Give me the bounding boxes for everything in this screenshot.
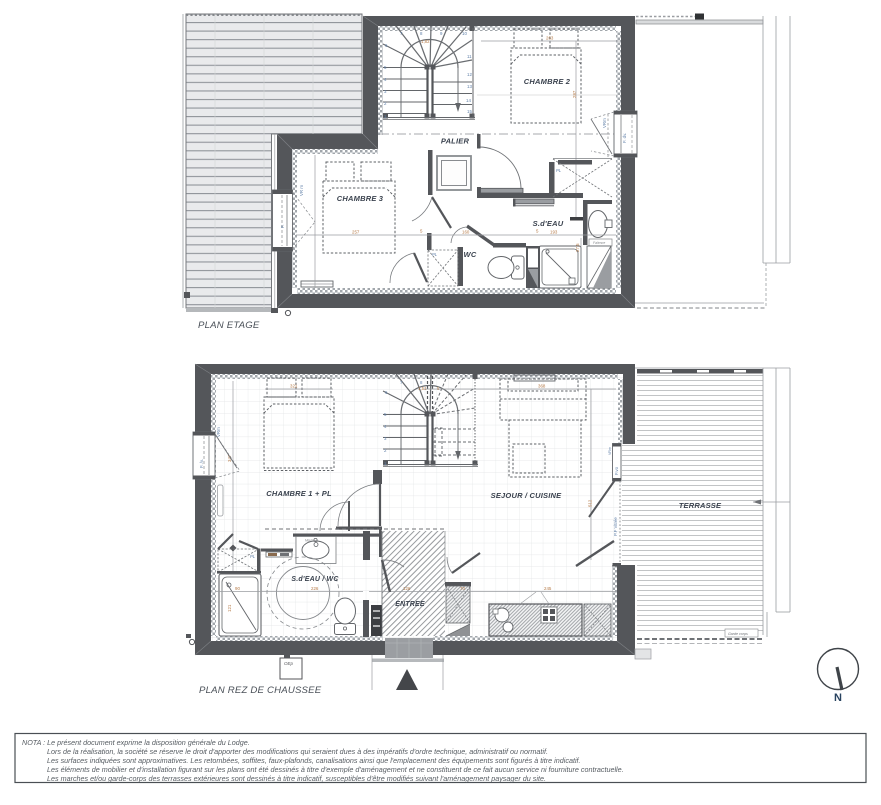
svg-text:PL: PL xyxy=(432,252,438,257)
svg-text:193: 193 xyxy=(550,230,558,235)
svg-text:PL: PL xyxy=(556,168,562,173)
svg-text:OEp: OEp xyxy=(284,661,294,666)
svg-text:27,5: 27,5 xyxy=(575,243,580,252)
svg-text:126: 126 xyxy=(403,586,411,591)
svg-text:P.F Vitrée: P.F Vitrée xyxy=(613,517,618,536)
svg-text:245: 245 xyxy=(544,586,552,591)
svg-text:VR m: VR m xyxy=(299,185,304,196)
svg-text:160: 160 xyxy=(462,230,470,235)
svg-text:226: 226 xyxy=(311,586,319,591)
svg-text:VRm: VRm xyxy=(216,427,221,437)
svg-text:257: 257 xyxy=(352,230,360,235)
svg-text:PALIER: PALIER xyxy=(441,137,470,146)
svg-text:Les surfaces indiquées sont ap: Les surfaces indiquées sont approximativ… xyxy=(47,756,581,765)
svg-text:S.d'EAU / WC: S.d'EAU / WC xyxy=(291,576,339,583)
svg-text:Les marches et/ou garde-corps: Les marches et/ou garde-corps des terras… xyxy=(47,774,546,783)
svg-text:12: 12 xyxy=(467,72,472,77)
svg-text:1,51: 1,51 xyxy=(418,386,427,391)
svg-text:ENTREE: ENTREE xyxy=(395,601,425,608)
svg-text:F. dv.: F. dv. xyxy=(622,133,627,143)
svg-text:CHAMBRE 3: CHAMBRE 3 xyxy=(337,194,384,203)
svg-text:N: N xyxy=(834,692,842,704)
svg-text:CHAMBRE 1 + PL: CHAMBRE 1 + PL xyxy=(266,489,332,498)
svg-text:10: 10 xyxy=(462,31,467,36)
svg-text:263: 263 xyxy=(546,36,554,41)
svg-text:Les éléments de mobilier et d': Les éléments de mobilier et d'installati… xyxy=(47,765,624,774)
svg-text:287: 287 xyxy=(572,90,577,98)
svg-text:CHAMBRE 2: CHAMBRE 2 xyxy=(524,77,571,86)
svg-text:F. /v.: F. /v. xyxy=(199,459,204,468)
svg-text:S.d'EAU: S.d'EAU xyxy=(533,219,564,228)
svg-text:321: 321 xyxy=(290,384,298,389)
svg-text:PLAN REZ DE CHAUSSEE: PLAN REZ DE CHAUSSEE xyxy=(199,685,322,696)
svg-text:NOTA : Le présent document exp: NOTA : Le présent document exprime la di… xyxy=(22,738,250,747)
svg-text:121: 121 xyxy=(227,604,232,612)
svg-text:Lors de la réalisation, la soc: Lors de la réalisation, la société se ré… xyxy=(47,747,548,756)
svg-text:15: 15 xyxy=(467,109,472,114)
svg-text:11: 11 xyxy=(467,54,472,59)
svg-text:13: 13 xyxy=(467,84,472,89)
svg-text:512: 512 xyxy=(588,499,593,507)
svg-text:PL: PL xyxy=(250,554,256,559)
svg-text:90: 90 xyxy=(235,586,240,591)
svg-text:WC: WC xyxy=(464,250,477,259)
svg-text:Faïence: Faïence xyxy=(593,241,605,245)
svg-text:VRm: VRm xyxy=(602,118,607,128)
svg-text:368: 368 xyxy=(538,384,546,389)
svg-text:Meub: Meub xyxy=(305,539,313,543)
svg-text:F.vo: F.vo xyxy=(614,466,619,475)
svg-text:1,82: 1,82 xyxy=(421,39,430,44)
svg-text:14: 14 xyxy=(466,98,471,103)
svg-text:70: 70 xyxy=(460,586,465,591)
svg-text:VRm: VRm xyxy=(608,447,612,455)
svg-text:TERRASSE: TERRASSE xyxy=(679,501,722,510)
svg-text:Garde corps: Garde corps xyxy=(728,632,748,636)
svg-text:SEJOUR / CUISINE: SEJOUR / CUISINE xyxy=(491,491,563,500)
svg-text:F.: F. xyxy=(280,225,285,228)
svg-text:PLAN ETAGE: PLAN ETAGE xyxy=(198,320,260,331)
